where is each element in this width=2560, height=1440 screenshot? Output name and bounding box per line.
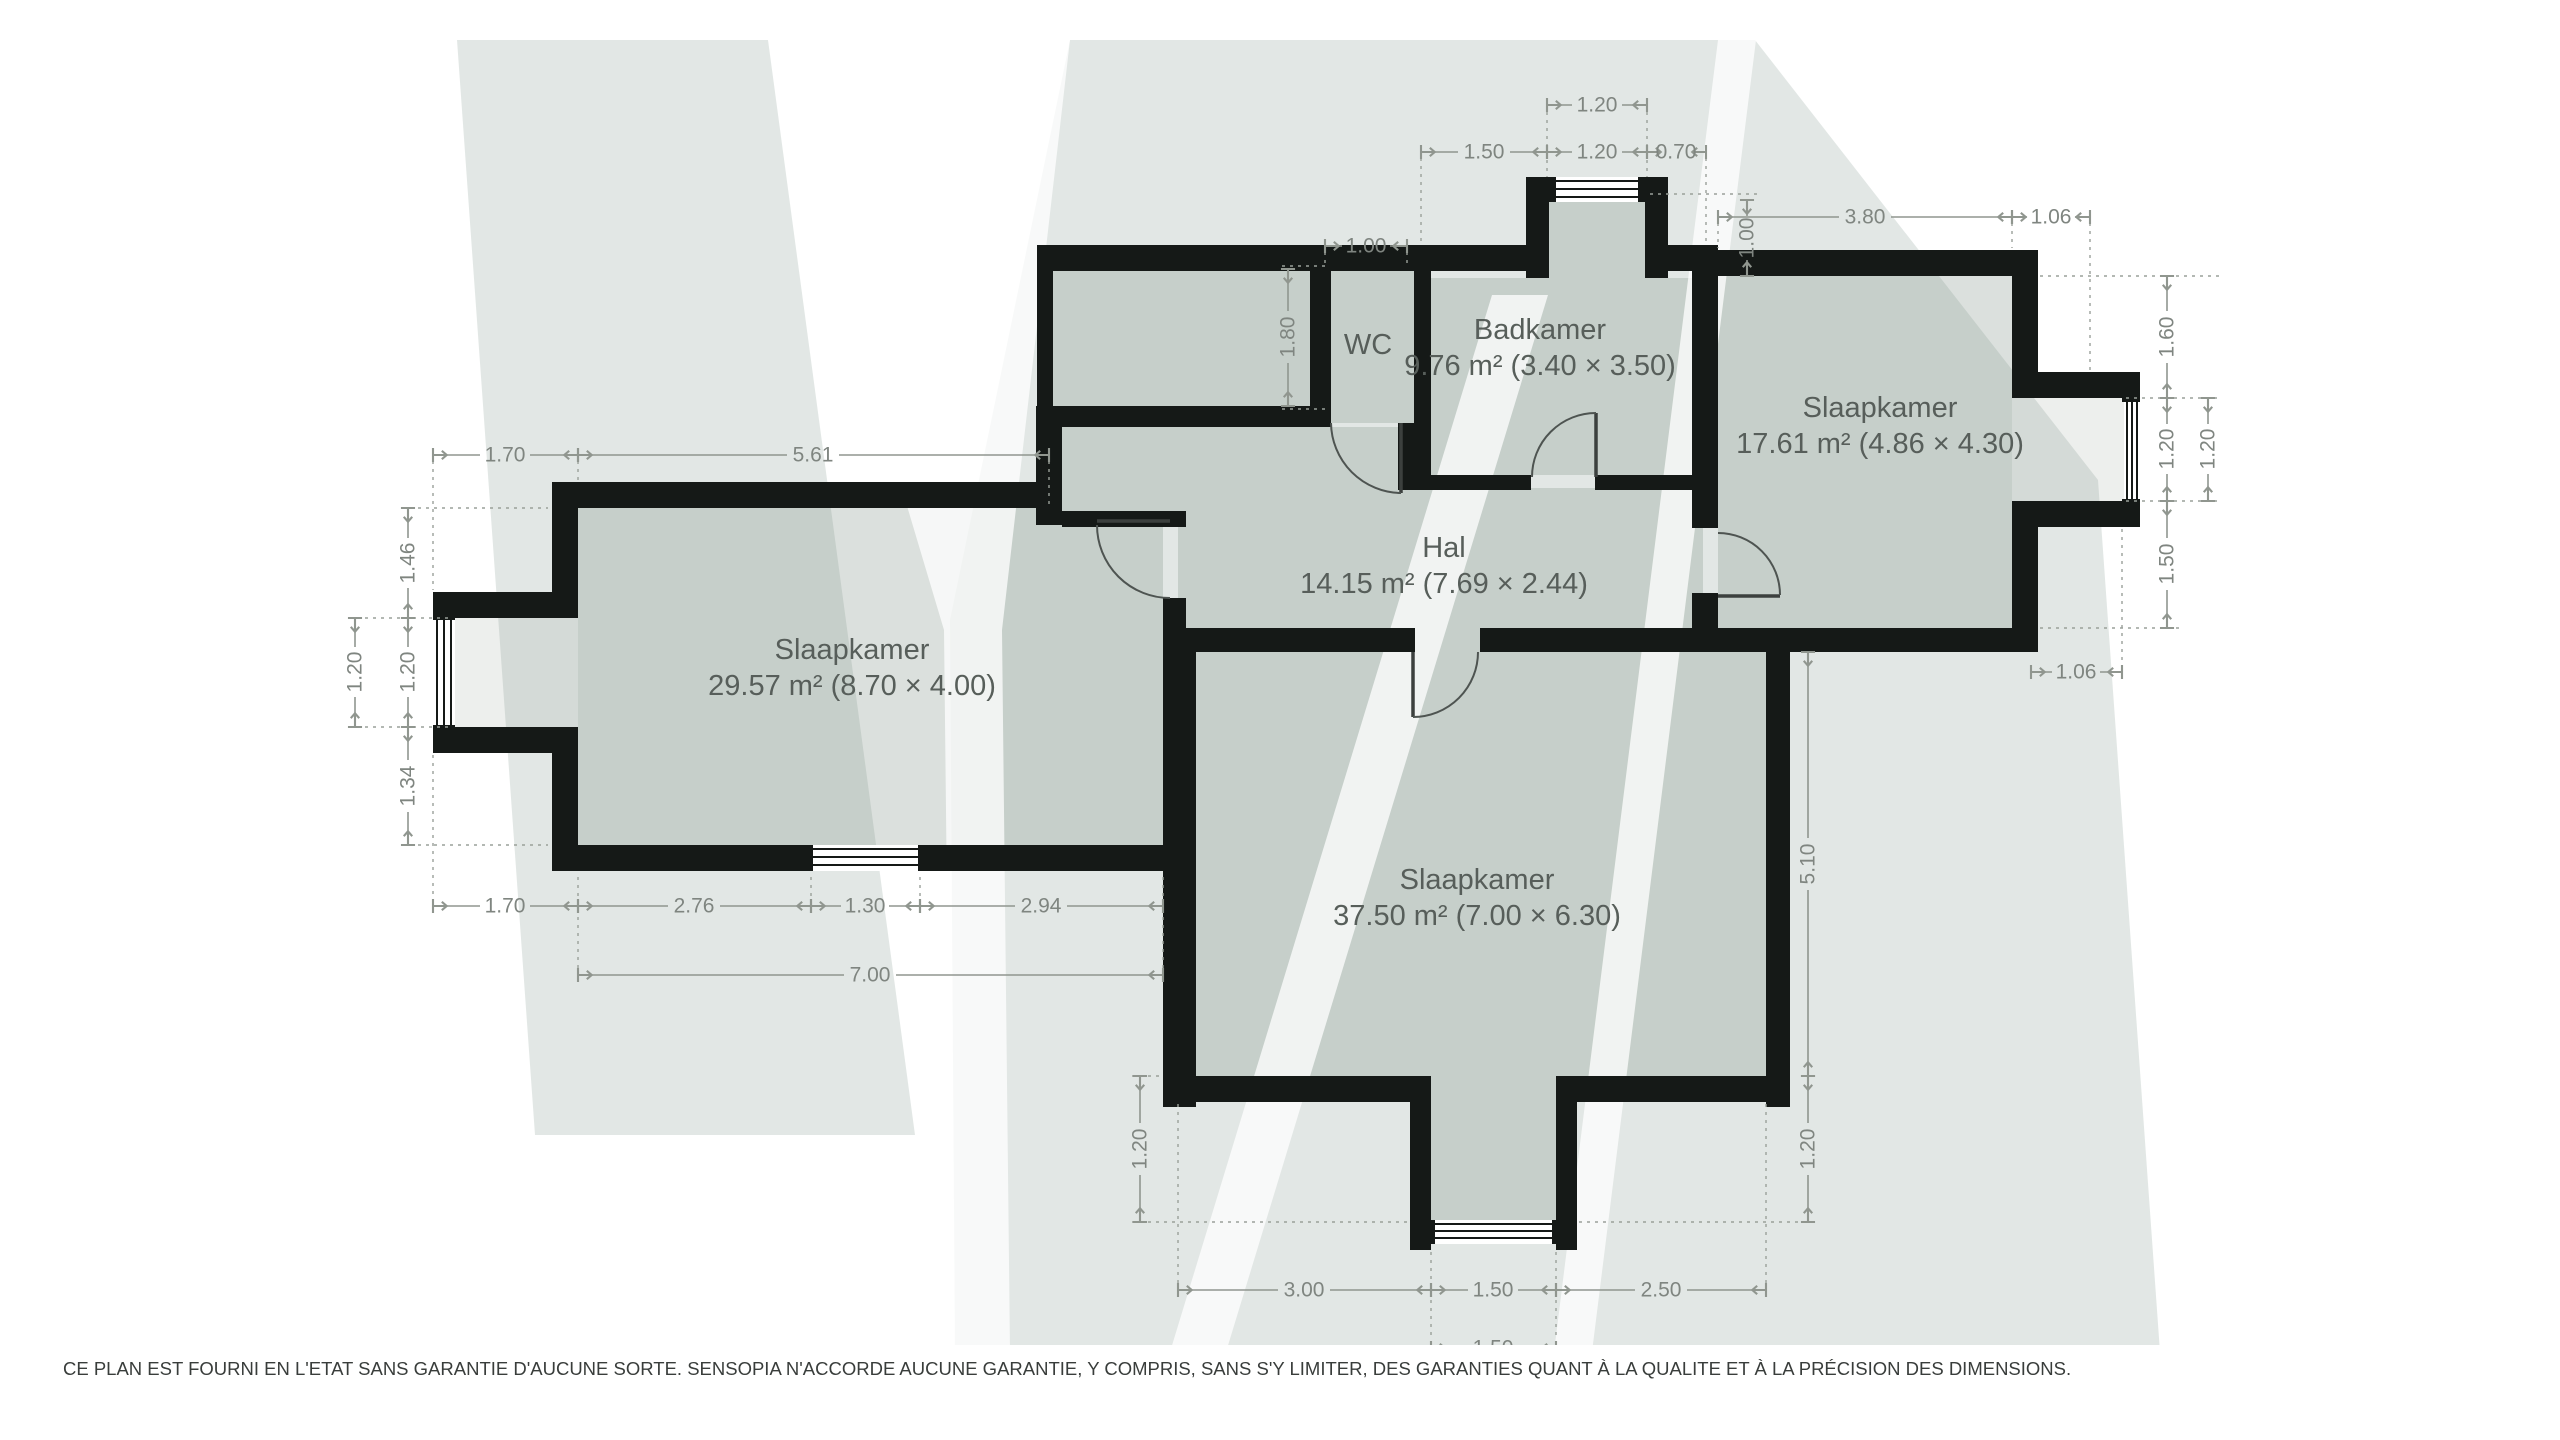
dimension-label: 1.20 (1129, 1129, 1152, 1170)
dimension-label: 1.20 (1797, 1129, 1820, 1170)
svg-text:Slaapkamer: Slaapkamer (775, 634, 930, 666)
dimension-label: 1.50 (1464, 141, 1505, 164)
dimension-label: 1.20 (344, 652, 367, 693)
dimension-label: 2.94 (1021, 895, 1062, 918)
dimension-label: 7.00 (850, 964, 891, 987)
svg-text:14.15 m² (7.69 × 2.44): 14.15 m² (7.69 × 2.44) (1300, 568, 1588, 600)
dimension-label: 1.34 (397, 765, 420, 806)
svg-text:29.57 m² (8.70 × 4.00): 29.57 m² (8.70 × 4.00) (708, 670, 996, 702)
svg-text:Badkamer: Badkamer (1474, 314, 1607, 346)
dimension-label: 1.20 (1577, 94, 1618, 117)
dimension-label: 1.20 (2197, 429, 2220, 470)
window (1427, 1220, 1560, 1244)
svg-text:Slaapkamer: Slaapkamer (1803, 392, 1958, 424)
dimension-label: 1.46 (397, 543, 420, 584)
dimension-label: 1.70 (485, 444, 526, 467)
dimension-label: 1.50 (1473, 1279, 1514, 1302)
dimension-label: 2.76 (674, 895, 715, 918)
dimension-label: 1.06 (2031, 206, 2072, 229)
svg-text:17.61 m² (4.86 × 4.30): 17.61 m² (4.86 × 4.30) (1736, 428, 2024, 460)
window (1549, 177, 1645, 202)
disclaimer-text: CE PLAN EST FOURNI EN L'ETAT SANS GARANT… (63, 1358, 2071, 1379)
dimension-label: 5.61 (793, 444, 834, 467)
dimension-label: 2.50 (1641, 1279, 1682, 1302)
svg-text:WC: WC (1344, 329, 1392, 361)
dimension-label: 1.60 (2156, 317, 2179, 358)
dimension-label: 5.10 (1797, 844, 1820, 885)
svg-text:Hal: Hal (1422, 532, 1466, 564)
dimension-label: 3.80 (1845, 206, 1886, 229)
dimension-label: 1.00 (1736, 218, 1759, 259)
svg-text:37.50 m² (7.00 × 6.30): 37.50 m² (7.00 × 6.30) (1333, 900, 1621, 932)
room-label-wc: WC (1344, 329, 1392, 361)
disclaimer-bar: CE PLAN EST FOURNI EN L'ETAT SANS GARANT… (0, 1345, 2560, 1440)
dimension-label: 1.20 (397, 652, 420, 693)
window (2122, 394, 2140, 507)
dimension-label: 1.70 (485, 895, 526, 918)
dimension-label: 0.70 (1656, 141, 1697, 164)
dimension-label: 1.20 (2156, 429, 2179, 470)
dimension-label: 1.00 (1346, 235, 1387, 258)
dimension-label: 3.00 (1284, 1279, 1325, 1302)
dimension-label: 1.30 (845, 895, 886, 918)
dimension-label: 1.80 (1277, 317, 1300, 358)
svg-text:9.76 m² (3.40 × 3.50): 9.76 m² (3.40 × 3.50) (1404, 350, 1676, 382)
dimension-label: 1.20 (1577, 141, 1618, 164)
svg-text:Slaapkamer: Slaapkamer (1400, 864, 1555, 896)
floor-plan-page: 1.20 1.50 1.20 0.70 1.00 1.00 3.80 1.06 … (0, 0, 2560, 1440)
dimension-label: 1.50 (2156, 544, 2179, 585)
window (433, 612, 455, 733)
window (805, 845, 926, 871)
floor-plan: 1.20 1.50 1.20 0.70 1.00 1.00 3.80 1.06 … (0, 0, 2560, 1440)
dimension-label: 1.06 (2056, 661, 2097, 684)
